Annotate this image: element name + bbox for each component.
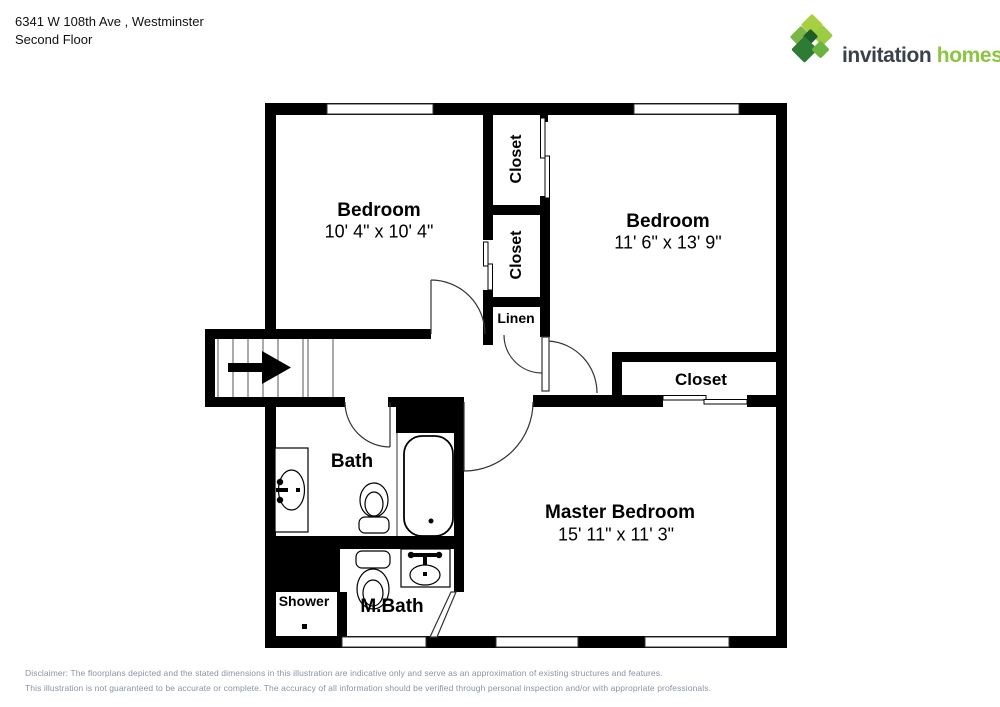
closet-master-label: Closet bbox=[675, 370, 727, 390]
staircase bbox=[218, 339, 333, 397]
bedroom-left-dimensions: 10' 4" x 10' 4" bbox=[325, 222, 434, 243]
stairs-direction-arrow-icon bbox=[228, 351, 291, 384]
bedroom-right-dimensions: 11' 6" x 13' 9" bbox=[614, 233, 721, 254]
bath-fixtures bbox=[275, 433, 453, 536]
disclaimer-line-1: Disclaimer: The floorplans depicted and … bbox=[25, 668, 663, 678]
floorplan-page: 6341 W 108th Ave , Westminster Second Fl… bbox=[0, 0, 1000, 707]
closet-mid-label: Closet bbox=[508, 231, 526, 280]
master-bedroom-dimensions: 15' 11" x 11' 3" bbox=[558, 525, 674, 546]
bedroom-right-label: Bedroom bbox=[626, 211, 709, 233]
master-bedroom-label: Master Bedroom bbox=[545, 502, 695, 524]
bath-label: Bath bbox=[331, 451, 373, 473]
master-bath-label: M.Bath bbox=[360, 596, 423, 618]
disclaimer-line-2: This illustration is not guaranteed to b… bbox=[25, 683, 711, 693]
closet-top-label: Closet bbox=[508, 135, 526, 184]
bedroom-left-label: Bedroom bbox=[337, 200, 420, 222]
linen-label: Linen bbox=[497, 310, 534, 326]
floorplan-drawing bbox=[0, 0, 1000, 707]
shower-label: Shower bbox=[279, 593, 330, 609]
shower-drain-icon bbox=[302, 624, 307, 629]
